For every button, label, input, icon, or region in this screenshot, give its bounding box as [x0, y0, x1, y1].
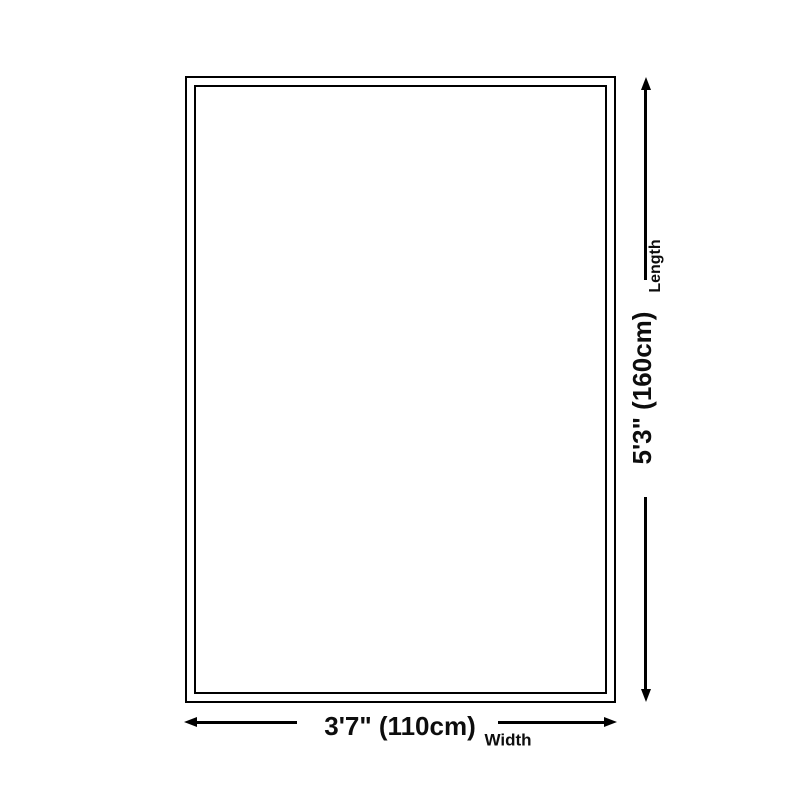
length-label: Length	[648, 239, 664, 292]
length-value: 5'3" (160cm)	[629, 312, 655, 465]
width-dimension-line-right	[498, 721, 604, 724]
width-label: Width	[484, 732, 531, 749]
arrow-right-icon	[604, 717, 617, 727]
width-value: 3'7" (110cm)	[324, 713, 476, 739]
length-dimension-line-bottom	[644, 497, 647, 690]
arrow-down-icon	[641, 689, 651, 702]
rug-outline-outer	[185, 76, 616, 703]
width-dimension-line-left	[196, 721, 297, 724]
dimension-diagram: Length 5'3" (160cm) 3'7" (110cm) Width	[0, 0, 800, 800]
rug-outline-inner	[194, 85, 607, 694]
